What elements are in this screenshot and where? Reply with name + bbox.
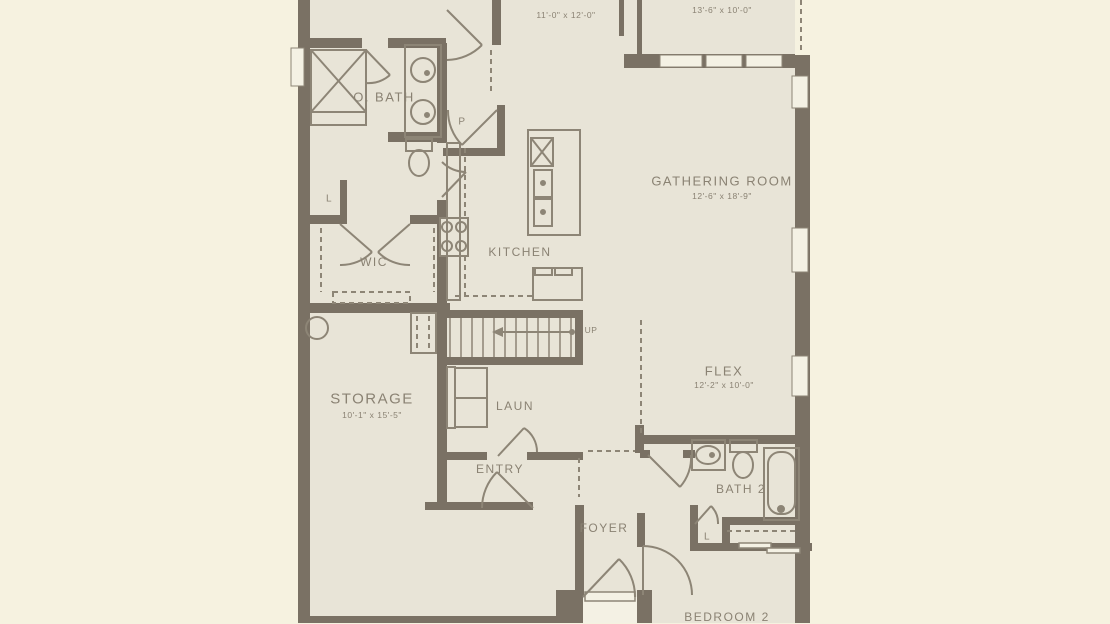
floor-plan: 11'-0" x 12'-0" 13'-6" x 10'-0" O. BATH … — [0, 0, 1110, 623]
room-label-gathering-dims: 12'-6" x 18'-9" — [692, 191, 752, 201]
floor-plan-drawing — [0, 0, 1110, 623]
room-label-linen-2: L — [704, 532, 710, 543]
stairs-up-label: UP — [585, 325, 598, 335]
room-label-flex: FLEX — [705, 364, 744, 379]
room-label-storage-dims: 10'-1" x 15'-5" — [342, 410, 402, 420]
room-label-suite-dims: 11'-0" x 12'-0" — [536, 10, 595, 20]
room-label-bath2: BATH 2 — [716, 482, 766, 496]
room-label-entry: ENTRY — [476, 462, 524, 476]
room-label-pantry: P — [458, 117, 465, 128]
range — [440, 218, 468, 256]
room-label-kitchen: KITCHEN — [488, 245, 551, 259]
room-label-wic: WIC — [360, 255, 388, 269]
room-label-lanai-dims: 13'-6" x 10'-0" — [692, 5, 752, 15]
room-label-flex-dims: 12'-2" x 10'-0" — [694, 380, 754, 390]
room-label-foyer: FOYER — [580, 521, 629, 535]
room-label-laundry: LAUN — [496, 399, 534, 413]
kitchen-island — [528, 130, 580, 235]
room-label-gathering: GATHERING ROOM — [651, 174, 792, 189]
room-label-owners-bath: O. BATH — [353, 90, 415, 105]
room-label-linen-1: L — [326, 194, 332, 205]
room-label-bedroom2: BEDROOM 2 — [684, 610, 770, 624]
room-label-storage: STORAGE — [330, 391, 414, 408]
